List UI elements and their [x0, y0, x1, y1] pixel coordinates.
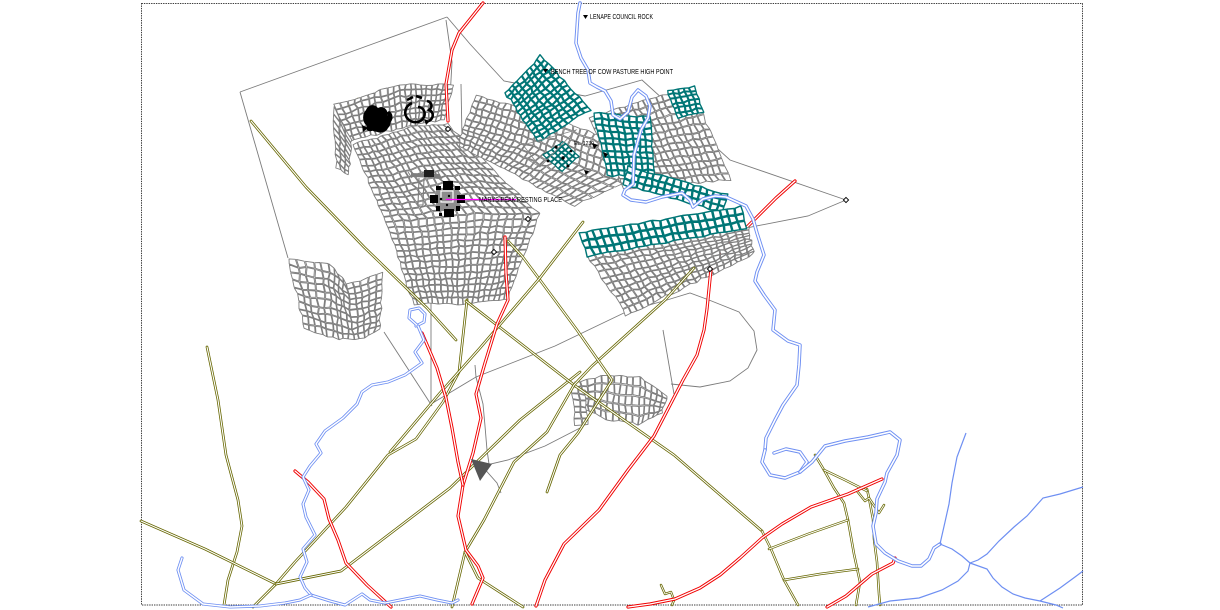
- svg-text:BENCH TREE OF COW PASTURE HIGH: BENCH TREE OF COW PASTURE HIGH POINT: [551, 67, 673, 76]
- svg-text:EL. 1230: EL. 1230: [574, 141, 594, 147]
- svg-text:MARYS PEAK RESTING PLACE: MARYS PEAK RESTING PLACE: [479, 197, 562, 204]
- svg-text:LENAPE COUNCIL ROCK: LENAPE COUNCIL ROCK: [590, 12, 653, 21]
